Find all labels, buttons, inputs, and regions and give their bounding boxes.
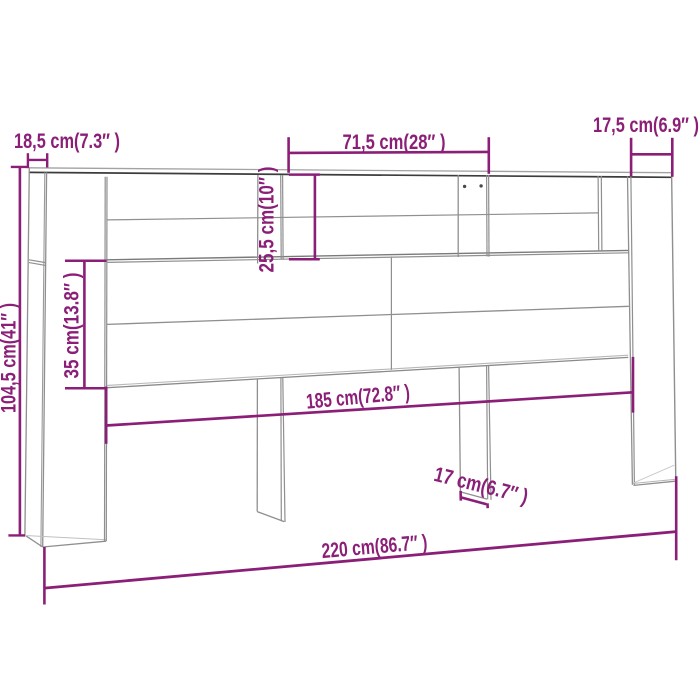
svg-text:35 cm(13.8″ ): 35 cm(13.8″ ) <box>60 273 83 379</box>
svg-text:71,5 cm(28″ ): 71,5 cm(28″ ) <box>343 131 446 154</box>
svg-text:104,5 cm(41″ ): 104,5 cm(41″ ) <box>0 303 21 413</box>
svg-text:25,5 cm(10″ ): 25,5 cm(10″ ) <box>255 167 278 273</box>
svg-text:18,5 cm(7.3″ ): 18,5 cm(7.3″ ) <box>14 130 120 153</box>
svg-text:17,5 cm(6.9″ ): 17,5 cm(6.9″ ) <box>593 114 699 137</box>
